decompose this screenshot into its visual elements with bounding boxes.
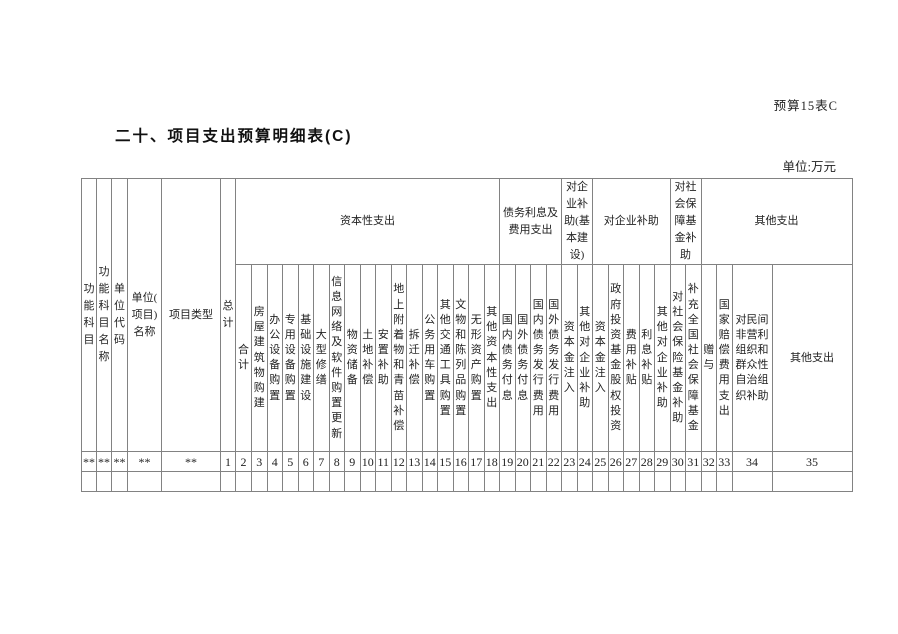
empty-cell: [82, 472, 97, 492]
group-header-enterprise-subsidy-capital-construction: 对企业补助(基本建设): [562, 179, 593, 265]
column-number-row: ** ** ** ** ** 1 2 3 4 5 6 7 8 9 10 11 1…: [82, 452, 853, 472]
column-number-cell: 11: [376, 452, 392, 472]
column-number-cell: 6: [298, 452, 314, 472]
col-header-project-type: 项目类型: [162, 179, 221, 452]
sub-header-col8: 信息网络及软件购置更新: [329, 265, 345, 452]
sub-header-col7: 大型修缮: [314, 265, 330, 452]
empty-cell: [655, 472, 671, 492]
sub-header-col20: 国外债务付息: [515, 265, 531, 452]
column-number-cell: 19: [500, 452, 516, 472]
empty-cell: [469, 472, 485, 492]
empty-cell: [500, 472, 516, 492]
empty-cell: [624, 472, 640, 492]
col-header-function-subject: 功能科目: [82, 179, 97, 452]
column-number-cell: 9: [345, 452, 361, 472]
masked-value-cell: **: [162, 452, 221, 472]
column-number-cell: 31: [686, 452, 702, 472]
group-header-social-security-fund-subsidy: 对社会保障基金补助: [670, 179, 701, 265]
column-number-cell: 21: [531, 452, 547, 472]
sub-header-col17: 无形资产购置: [469, 265, 485, 452]
empty-cell: [639, 472, 655, 492]
empty-cell: [515, 472, 531, 492]
empty-cell: [701, 472, 717, 492]
empty-cell: [221, 472, 236, 492]
column-number-cell: 16: [453, 452, 469, 472]
group-header-row: 功能科目 功能科目名称 单位代码 单位(项目)名称 项目类型 总计 资本性支出 …: [82, 179, 853, 265]
empty-cell: [97, 472, 112, 492]
empty-cell: [608, 472, 624, 492]
masked-value-cell: **: [97, 452, 112, 472]
sub-header-col33: 国家赔偿费用支出: [717, 265, 733, 452]
masked-value-cell: **: [128, 452, 162, 472]
empty-data-row: [82, 472, 853, 492]
column-number-cell: 34: [732, 452, 772, 472]
empty-cell: [376, 472, 392, 492]
empty-cell: [670, 472, 686, 492]
empty-cell: [267, 472, 283, 492]
page-title: 二十、项目支出预算明细表(C): [115, 124, 353, 146]
column-number-cell: 27: [624, 452, 640, 472]
col-header-unit-code: 单位代码: [112, 179, 128, 452]
sub-header-col23: 资本金注入: [562, 265, 578, 452]
document-page: 预算15表C 二十、项目支出预算明细表(C) 单位:万元 功能科目 功能科目名称…: [0, 0, 898, 634]
column-number-cell: 17: [469, 452, 485, 472]
empty-cell: [732, 472, 772, 492]
sub-header-col24: 其他对企业补助: [577, 265, 593, 452]
empty-cell: [360, 472, 376, 492]
empty-cell: [593, 472, 609, 492]
sub-header-col12: 地上附着物和青苗补偿: [391, 265, 407, 452]
sub-header-col14: 公务用车购置: [422, 265, 438, 452]
group-header-enterprise-subsidy: 对企业补助: [593, 179, 671, 265]
empty-cell: [531, 472, 547, 492]
sub-header-col35: 其他支出: [772, 265, 852, 452]
empty-cell: [484, 472, 500, 492]
column-number-cell: 29: [655, 452, 671, 472]
column-number-cell: 28: [639, 452, 655, 472]
empty-cell: [236, 472, 252, 492]
empty-cell: [128, 472, 162, 492]
empty-cell: [252, 472, 268, 492]
column-number-cell: 10: [360, 452, 376, 472]
sub-header-col13: 拆迁补偿: [407, 265, 423, 452]
sub-header-col19: 国内债务付息: [500, 265, 516, 452]
group-header-capital-expenditure: 资本性支出: [236, 179, 500, 265]
empty-cell: [314, 472, 330, 492]
empty-cell: [453, 472, 469, 492]
masked-value-cell: **: [112, 452, 128, 472]
empty-cell: [345, 472, 361, 492]
empty-cell: [717, 472, 733, 492]
sub-header-col29: 其他对企业补助: [655, 265, 671, 452]
column-number-cell: 3: [252, 452, 268, 472]
empty-cell: [283, 472, 299, 492]
budget-table: 功能科目 功能科目名称 单位代码 单位(项目)名称 项目类型 总计 资本性支出 …: [81, 178, 853, 492]
empty-cell: [162, 472, 221, 492]
column-number-cell: 23: [562, 452, 578, 472]
sub-header-col30: 对社会保险基金补助: [670, 265, 686, 452]
empty-cell: [407, 472, 423, 492]
empty-cell: [422, 472, 438, 492]
column-number-cell: 33: [717, 452, 733, 472]
sub-header-col11: 安置补助: [376, 265, 392, 452]
sub-header-col4: 办公设备购置: [267, 265, 283, 452]
sub-header-col27: 费用补贴: [624, 265, 640, 452]
sub-header-col31: 补充全国社会保障基金: [686, 265, 702, 452]
sheet-number-label: 预算15表C: [774, 95, 838, 114]
sub-header-col9: 物资储备: [345, 265, 361, 452]
column-number-cell: 5: [283, 452, 299, 472]
column-number-cell: 1: [221, 452, 236, 472]
empty-cell: [577, 472, 593, 492]
empty-cell: [329, 472, 345, 492]
column-number-cell: 8: [329, 452, 345, 472]
column-number-cell: 12: [391, 452, 407, 472]
column-number-cell: 24: [577, 452, 593, 472]
sub-header-col16: 文物和陈列品购置: [453, 265, 469, 452]
sub-header-col21: 国内债务发行费用: [531, 265, 547, 452]
sub-header-col18: 其他资本性支出: [484, 265, 500, 452]
sub-header-col6: 基础设施建设: [298, 265, 314, 452]
column-number-cell: 14: [422, 452, 438, 472]
empty-cell: [546, 472, 562, 492]
unit-label: 单位:万元: [783, 156, 836, 175]
sub-header-col32: 赠与: [701, 265, 717, 452]
empty-cell: [686, 472, 702, 492]
column-number-cell: 35: [772, 452, 852, 472]
empty-cell: [391, 472, 407, 492]
empty-cell: [772, 472, 852, 492]
empty-cell: [438, 472, 454, 492]
column-number-cell: 32: [701, 452, 717, 472]
sub-header-col22: 国外债务发行费用: [546, 265, 562, 452]
col-header-function-subject-name: 功能科目名称: [97, 179, 112, 452]
sub-header-col5: 专用设备购置: [283, 265, 299, 452]
empty-cell: [112, 472, 128, 492]
column-number-cell: 13: [407, 452, 423, 472]
column-number-cell: 15: [438, 452, 454, 472]
col-header-unit-project-name: 单位(项目)名称: [128, 179, 162, 452]
column-number-cell: 4: [267, 452, 283, 472]
column-number-cell: 2: [236, 452, 252, 472]
group-header-other-expenditure: 其他支出: [701, 179, 852, 265]
sub-header-col10: 土地补偿: [360, 265, 376, 452]
sub-header-col34: 对民间非营利组织和群众性自治组织补助: [732, 265, 772, 452]
col-header-grand-total: 总计: [221, 179, 236, 452]
sub-header-col26: 政府投资基金股权投资: [608, 265, 624, 452]
empty-cell: [298, 472, 314, 492]
column-number-cell: 25: [593, 452, 609, 472]
sub-header-col2: 合计: [236, 265, 252, 452]
sub-header-col25: 资本金注入: [593, 265, 609, 452]
column-number-cell: 18: [484, 452, 500, 472]
empty-cell: [562, 472, 578, 492]
column-number-cell: 20: [515, 452, 531, 472]
column-number-cell: 7: [314, 452, 330, 472]
column-number-cell: 30: [670, 452, 686, 472]
group-header-debt-interest-fees: 债务利息及费用支出: [500, 179, 562, 265]
sub-header-col28: 利息补贴: [639, 265, 655, 452]
column-number-cell: 26: [608, 452, 624, 472]
sub-header-col15: 其他交通工具购置: [438, 265, 454, 452]
column-number-cell: 22: [546, 452, 562, 472]
masked-value-cell: **: [82, 452, 97, 472]
sub-header-col3: 房屋建筑物购建: [252, 265, 268, 452]
